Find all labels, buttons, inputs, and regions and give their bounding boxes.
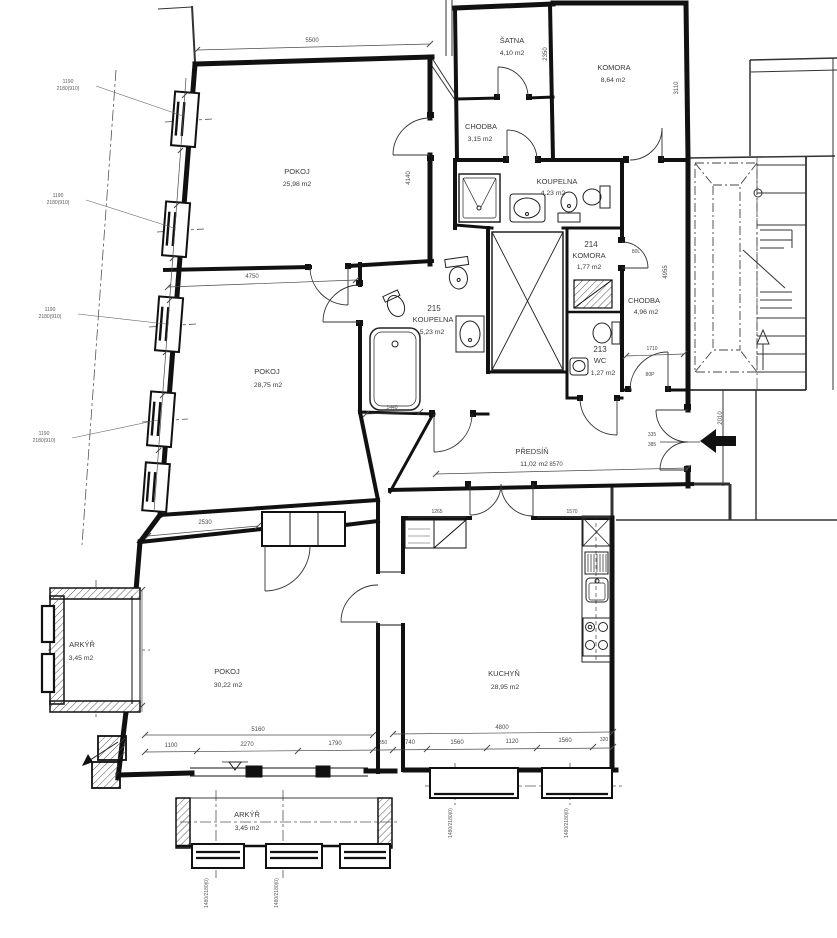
room-area-pokoj1: 25,98 m2 [283,181,312,188]
floor-plan-page: POKOJ 25,98 m2 POKOJ 28,75 m2 POKOJ 30,2… [0,0,837,938]
room-area-chodba-horni: 3,15 m2 [468,136,493,143]
door-chodba-predsin [630,352,668,390]
dim-seg: 1560 [558,738,572,744]
door-pokoj1-pokoj2 [310,267,348,305]
door-nika-pokoj3 [265,546,310,591]
entry-closet [405,520,466,548]
dim-door-height: 2010 [718,411,724,425]
room-number-213: 213 [593,345,607,354]
floor-plan-drawing: POKOJ 25,98 m2 POKOJ 28,75 m2 POKOJ 30,2… [0,0,837,938]
staircase [688,58,837,520]
stair-direction-arrow [757,330,769,344]
room-area-pokoj3: 30,22 m2 [214,682,243,689]
dim-pokoj1-top: 5500 [305,38,319,44]
toilet [593,322,620,344]
room-label-koupelna-horni: KOUPELNA [537,177,578,186]
room-area-koupelna-horni: 4,23 m2 [541,190,566,197]
window-callout-width: 1190 [63,79,74,85]
window-callout-height: 2180(910) [57,86,80,92]
dishwasher [585,552,608,574]
window-callout-height: 2180(910) [33,438,56,444]
room-label-satna: ŠATNA [500,36,524,45]
washbasin [510,194,545,222]
room-label-kuchyn: KUCHYŇ [488,669,520,678]
door-komora214 [622,242,648,268]
bidet [383,290,408,319]
arkyr-window [42,606,54,642]
room-area-213: 1,27 m2 [591,370,616,377]
dimension-labels: 5500 4750 2530 8570 5160 4800 1100 2270 … [165,38,724,749]
door-satna [498,67,528,97]
room-label-213: WC [594,356,607,365]
fixtures [370,174,620,662]
shower [459,174,500,222]
dim-ticks [139,41,691,755]
arkyr-bottom-bay [176,766,392,868]
window-callout-height: 2180(910) [39,314,62,320]
window-callout-vertical: 1480/2180(0) [564,808,570,838]
room-label-chodba-horni: CHODBA [465,122,497,131]
callout-leaders [72,86,183,438]
dim-seg: 2270 [240,742,254,748]
dim-seg: 1790 [328,741,342,747]
window-callout-vertical: 1480/2180(0) [204,878,210,908]
dim-seg: 350 [379,740,388,746]
room-number-214: 214 [584,240,598,249]
dim-entry-b: 385 [648,442,657,448]
room-label-arkyr-dolni: ARKÝŘ [234,810,260,819]
room-label-komora-horni: KOMORA [597,63,630,72]
room-label-214: KOMORA [572,251,605,260]
dim-bathtub: 1440 [386,405,397,411]
window-bay [171,91,199,147]
room-label-215: KOUPELNA [413,315,454,324]
dim-door: 1710 [646,346,657,352]
dim-seg: 740 [405,740,416,746]
room-label-pokoj2: POKOJ [254,367,280,376]
facade-window-bays [142,91,199,512]
room-label-chodba-stredni: CHODBA [628,296,660,305]
dim-komora-height: 3110 [674,81,680,95]
room-label-pokoj3: POKOJ [214,667,240,676]
wardrobe-niche [262,512,345,546]
dimension-lines [139,41,691,755]
stove [583,618,610,656]
dim-seg: 1120 [506,739,520,745]
dim-total-right: 4800 [495,725,509,731]
dim-seg: 1560 [450,740,464,746]
door-entrance-double [656,410,700,470]
dim-predsin: 8570 [549,462,563,468]
entrance-arrow [700,429,736,453]
arkyr-window [42,654,54,692]
window-callout-height: 2180(910) [47,200,70,206]
room-area-arkyr-dolni: 3,45 m2 [235,825,260,832]
door-width-mark: 80P [646,372,656,378]
door-komora-horni [630,128,662,160]
room-area-pokoj2: 28,75 m2 [254,382,283,389]
level-mark [222,762,248,770]
room-label-arkyr-levy: ARKÝŘ [69,640,95,649]
dim-chodba-height: 4955 [663,265,669,279]
door-pokoj2-koupelna215 [323,285,360,322]
window-callout-vertical: 1480/2180(0) [274,878,280,908]
door-pokoj3-kuchyn [341,585,378,622]
dim-pokoj3-top: 2530 [198,520,212,526]
dim-entry-a: 335 [648,432,657,438]
bidet [583,186,610,208]
room-label-predsin: PŘEDSÍŇ [515,447,548,456]
window-callout-width: 1190 [53,193,64,199]
door-width-mark: 80L [632,249,641,255]
door-koupelna215-predsin [434,414,472,452]
window-callout-vertical: 1480/2180(0) [448,808,454,838]
fridge [583,518,610,546]
window-callout-width: 1190 [39,431,50,437]
room-number-215: 215 [427,304,441,313]
chimney-shaft [574,280,612,308]
arkyr-bottom-windows [192,844,390,868]
bathtub [370,328,420,410]
dim-pokoj1-height: 4140 [406,171,412,185]
dim-closet: 1265 [431,509,442,515]
room-area-predsin: 11,02 m2 [520,461,548,468]
dim-seg: 1100 [165,743,179,749]
kitchen-sink [586,578,608,602]
dim-seg: 320 [600,737,609,743]
room-area-satna: 4,10 m2 [500,50,525,57]
room-area-arkyr-levy: 3,45 m2 [69,655,94,662]
dim-satna-wall: 2350 [543,47,549,61]
corner-sink [570,358,588,375]
door-chodba-koupelna [507,130,537,160]
room-label-pokoj1: POKOJ [284,167,310,176]
arkyr-left-bay [42,588,140,712]
room-area-214: 1,77 m2 [577,264,602,271]
toilet [445,256,472,290]
door-wc213 [580,398,617,435]
dim-pokoj2-top: 4750 [245,274,259,280]
light-shaft [492,232,563,370]
window-callout-width: 1190 [45,307,56,313]
room-area-kuchyn: 28,95 m2 [491,684,520,691]
dim-total-left: 5160 [251,727,265,733]
door-pokoj1 [393,118,430,155]
dim-kitchen-top: 1570 [566,509,577,515]
room-area-komora-horni: 8,64 m2 [601,77,626,84]
room-area-chodba-stredni: 4,96 m2 [634,309,659,316]
elevator-shaft [695,163,757,372]
washbasin [456,316,484,352]
room-area-215: 5,23 m2 [420,329,445,336]
